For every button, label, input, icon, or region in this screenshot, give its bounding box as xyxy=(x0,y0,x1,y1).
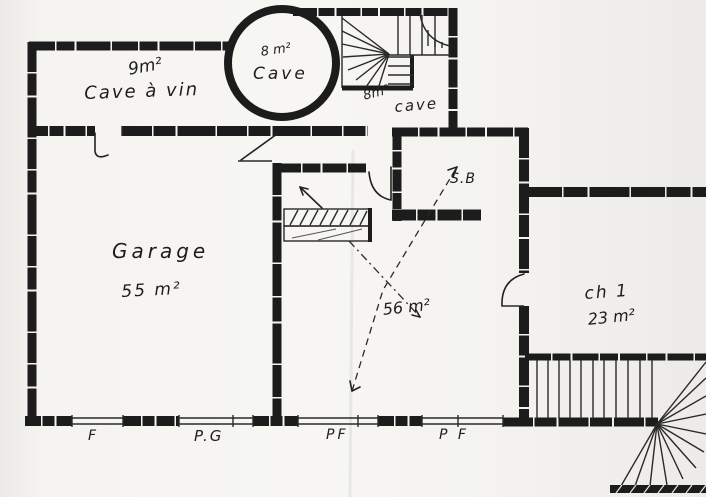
label-opening-f: F xyxy=(88,429,96,443)
floorplan-drawing xyxy=(0,0,706,497)
paper-fold-line xyxy=(350,150,353,497)
door-ch1 xyxy=(502,274,524,306)
door-under-turret xyxy=(238,134,277,161)
bottom-wall xyxy=(25,421,658,422)
label-cave-a-vin: Cave à vin xyxy=(84,81,199,103)
label-small-cave-name: cave xyxy=(394,96,439,115)
door-cave-a-vin xyxy=(95,126,122,157)
door-vestibule xyxy=(369,167,391,200)
french-window-pf2-symbol xyxy=(422,415,503,427)
window-f-symbol xyxy=(72,415,123,427)
label-garage: Garage xyxy=(112,241,209,261)
label-ch1: ch 1 xyxy=(584,283,629,303)
label-opening-pg: P.G xyxy=(194,429,223,444)
floorplan-scan: 9m² Cave à vin 8 m² Cave 8m² cave S.B Ga… xyxy=(0,0,706,497)
staircase-top xyxy=(342,14,451,89)
round-cellar-wall xyxy=(228,9,336,117)
garage-door-pg-symbol xyxy=(179,415,253,427)
label-opening-pf2: P F xyxy=(439,428,469,442)
label-opening-pf1: PF xyxy=(326,428,349,442)
label-sb: S.B xyxy=(450,172,476,186)
label-turret-area: 8 m² xyxy=(260,42,292,59)
annotation-arrow-to-sb xyxy=(350,167,457,391)
label-turret-name: Cave xyxy=(253,66,308,83)
stair-direction-arrow xyxy=(300,187,322,208)
staircase-hatched xyxy=(284,208,371,242)
french-window-pf1-symbol xyxy=(298,415,378,427)
label-garage-area: 55 m² xyxy=(121,281,182,301)
